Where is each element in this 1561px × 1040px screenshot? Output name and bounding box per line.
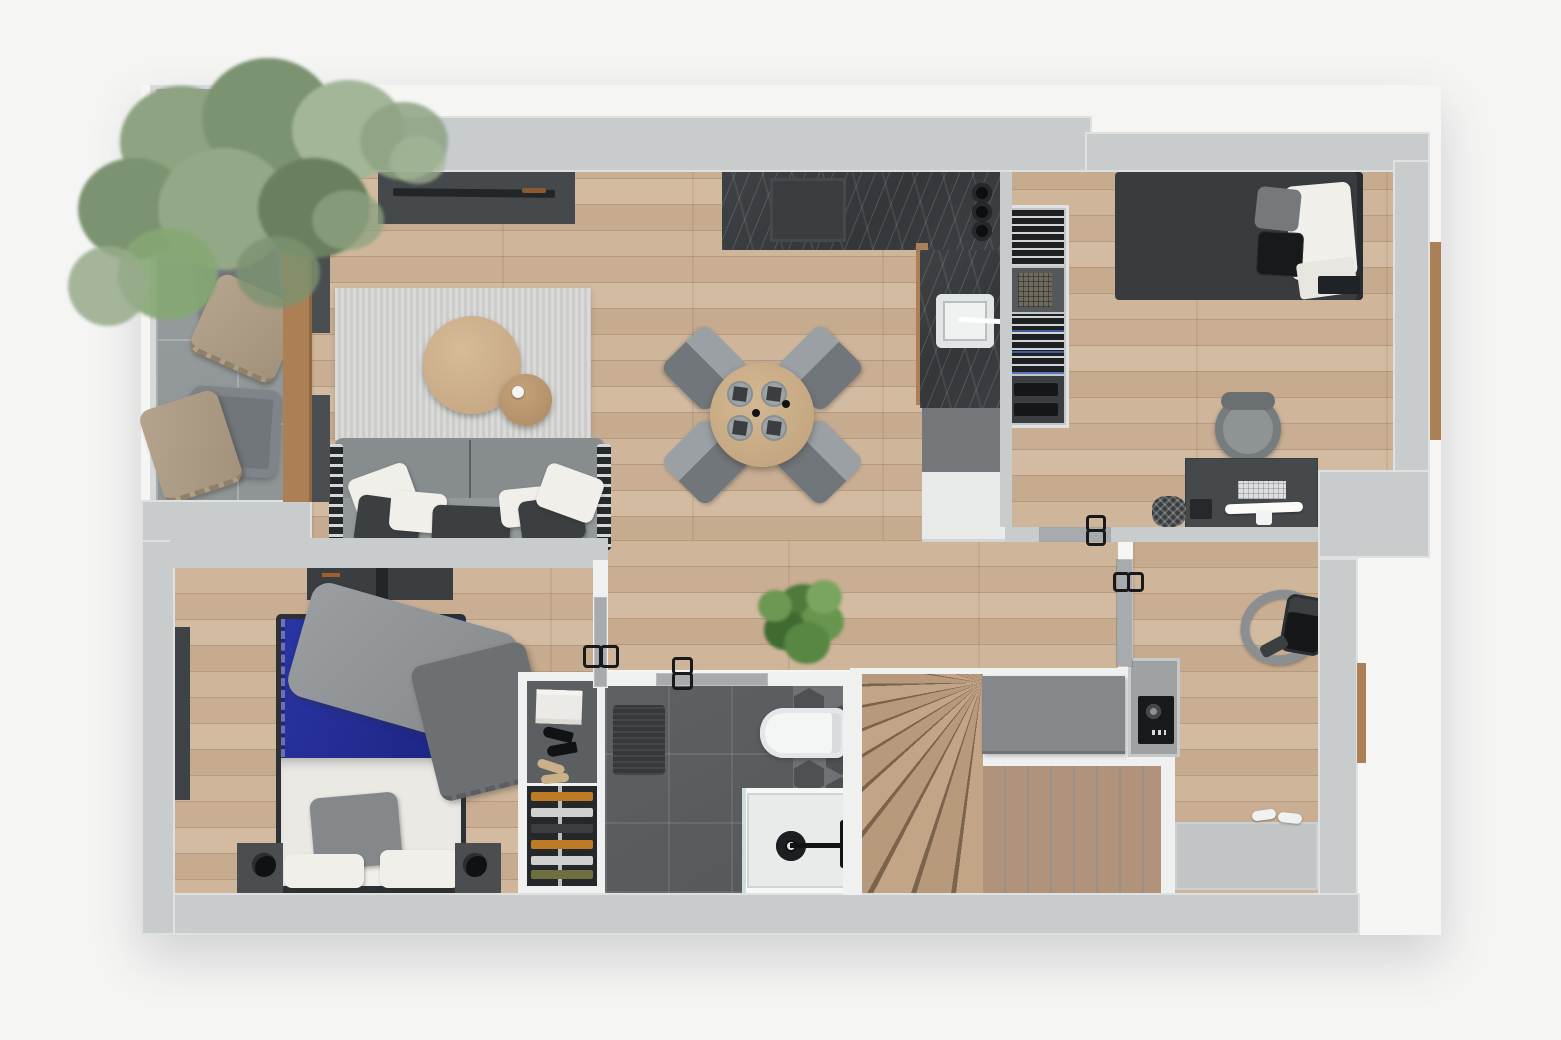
wardrobe-clothes-rail [1010, 314, 1064, 374]
shoe-row [531, 840, 593, 849]
shoe-row [531, 792, 593, 801]
terrace-tree [60, 40, 440, 330]
shower-glass [742, 788, 746, 893]
table-lamp [463, 853, 487, 877]
monitor-stand [1256, 510, 1272, 525]
stair-half-wall [982, 676, 1125, 754]
window-frame-utility [1357, 663, 1366, 763]
bed-bench [1318, 276, 1360, 294]
folded-clothes [535, 689, 582, 725]
desk-chair-back [1221, 392, 1275, 410]
place-setting [727, 381, 753, 407]
tree-foliage [312, 190, 384, 250]
safe-keys [1152, 730, 1166, 735]
keyboard [1238, 481, 1286, 499]
wicker-basket [1018, 273, 1052, 307]
wall-bedroom-left-top [170, 538, 608, 568]
candle [782, 400, 790, 408]
floor-plan-canvas [0, 0, 1561, 1040]
safe-dial [1146, 704, 1161, 719]
candle [752, 409, 760, 417]
tree-foliage [68, 246, 148, 326]
entry-mat [1175, 822, 1318, 890]
side-table [500, 374, 552, 426]
bedroom-left-door [595, 598, 606, 686]
kitchen-cabinet-white [922, 472, 1005, 542]
cup [512, 386, 524, 398]
kitchen-jar [972, 183, 992, 203]
door-handle [1086, 529, 1106, 546]
window-box-right [1430, 242, 1441, 440]
shoe-row [531, 856, 593, 865]
sofa-cushion-split [469, 440, 471, 498]
shoe-row [531, 870, 593, 879]
wall-right-lower [1318, 558, 1358, 905]
wall-kitchen-bedroom [1000, 172, 1012, 527]
hallway-floor [598, 540, 1118, 670]
shoe-row [531, 824, 593, 833]
wall-right-step [1318, 470, 1430, 558]
door-handle [600, 645, 619, 668]
cooktop [770, 178, 846, 242]
radiator [175, 627, 190, 800]
wall-right-upper [1393, 160, 1430, 475]
wall-bottom [141, 893, 1360, 935]
winder-steps [862, 674, 983, 893]
plant-foliage [784, 622, 830, 664]
door-handle [672, 672, 693, 690]
shelf-item [322, 573, 340, 577]
kitchen-jar [972, 202, 992, 222]
sheet-fold [284, 854, 364, 888]
place-setting [761, 415, 787, 441]
drawer [1014, 402, 1058, 416]
shoe-row [531, 808, 593, 817]
door-handle [1127, 572, 1144, 592]
kitchen-counter-top [722, 170, 1005, 250]
plant-foliage [806, 580, 842, 614]
tree-foliage [390, 136, 446, 184]
tv-remote [522, 188, 546, 193]
tree-foliage [236, 236, 320, 308]
desk-box [1190, 499, 1212, 519]
bed-pillow-gray [1254, 186, 1302, 232]
potted-plant [758, 576, 854, 676]
table-lamp [252, 853, 276, 877]
drawer [1014, 382, 1058, 396]
sofa-armrest [329, 444, 343, 550]
terrace-door-panel [312, 395, 330, 502]
kitchen-cabinet-gray [922, 408, 1005, 472]
wall-bathroom-top [606, 672, 658, 686]
place-setting [727, 415, 753, 441]
wall-top-right [1085, 132, 1430, 172]
waste-basket [1152, 496, 1186, 527]
wall-terrace-bottom [141, 500, 312, 542]
toilet [760, 708, 846, 758]
shelf-item-dark [376, 565, 388, 600]
bath-mat [613, 705, 665, 775]
straight-steps [983, 766, 1161, 893]
wardrobe-shelf [1010, 268, 1064, 312]
wardrobe-clothes-rail [1010, 210, 1064, 266]
wardrobe [1005, 205, 1069, 428]
wardrobe-drawers [1010, 376, 1064, 423]
safe [1138, 696, 1174, 744]
sheet-fold [380, 850, 460, 888]
dining-table [710, 363, 814, 467]
wall-bathroom-right [843, 672, 862, 895]
kitchen-jar [972, 221, 992, 241]
plant-foliage [758, 590, 792, 622]
